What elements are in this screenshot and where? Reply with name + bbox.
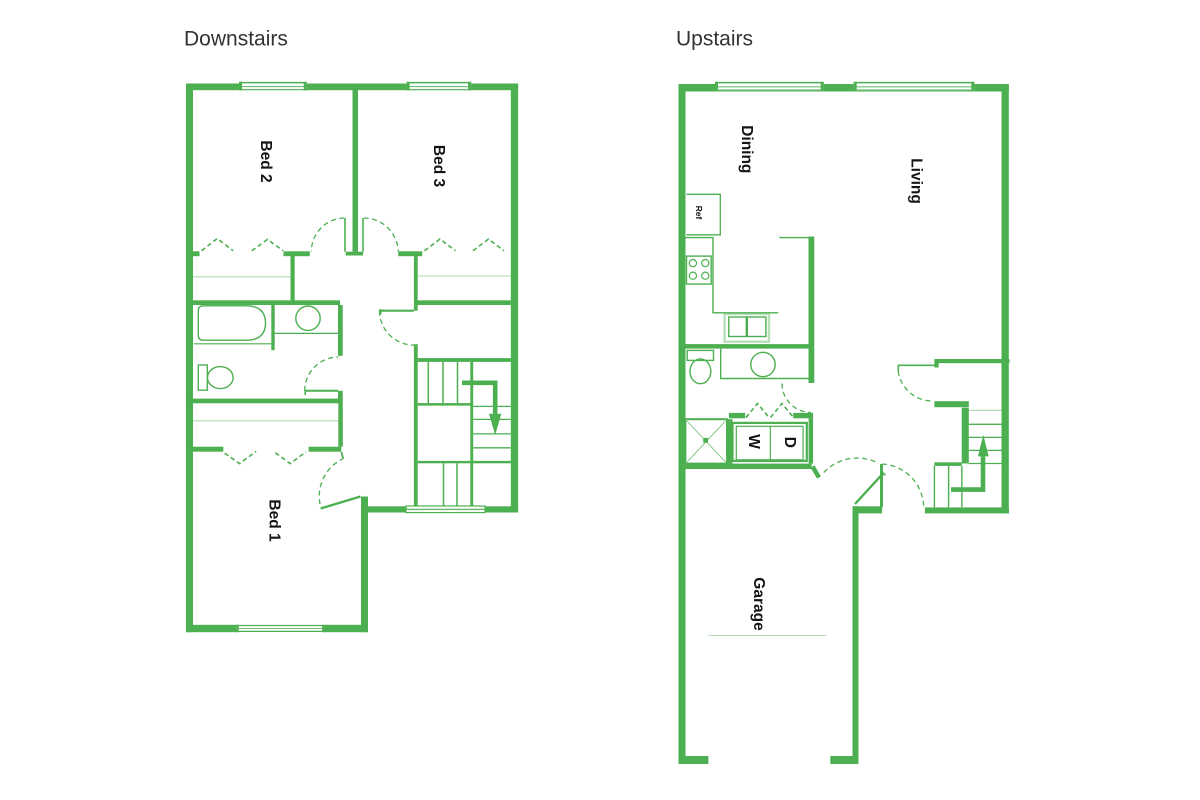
svg-text:Ref: Ref	[694, 206, 704, 220]
svg-text:Downstairs: Downstairs	[184, 27, 288, 50]
svg-text:Dining: Dining	[738, 125, 755, 173]
svg-text:W: W	[745, 434, 762, 449]
svg-text:Garage: Garage	[750, 577, 767, 631]
svg-text:Living: Living	[908, 158, 925, 204]
svg-text:D: D	[781, 437, 798, 448]
svg-text:Bed 2: Bed 2	[257, 140, 274, 182]
svg-text:Bed 1: Bed 1	[266, 499, 283, 542]
svg-text:Bed 3: Bed 3	[430, 145, 447, 188]
svg-text:Upstairs: Upstairs	[676, 27, 753, 50]
